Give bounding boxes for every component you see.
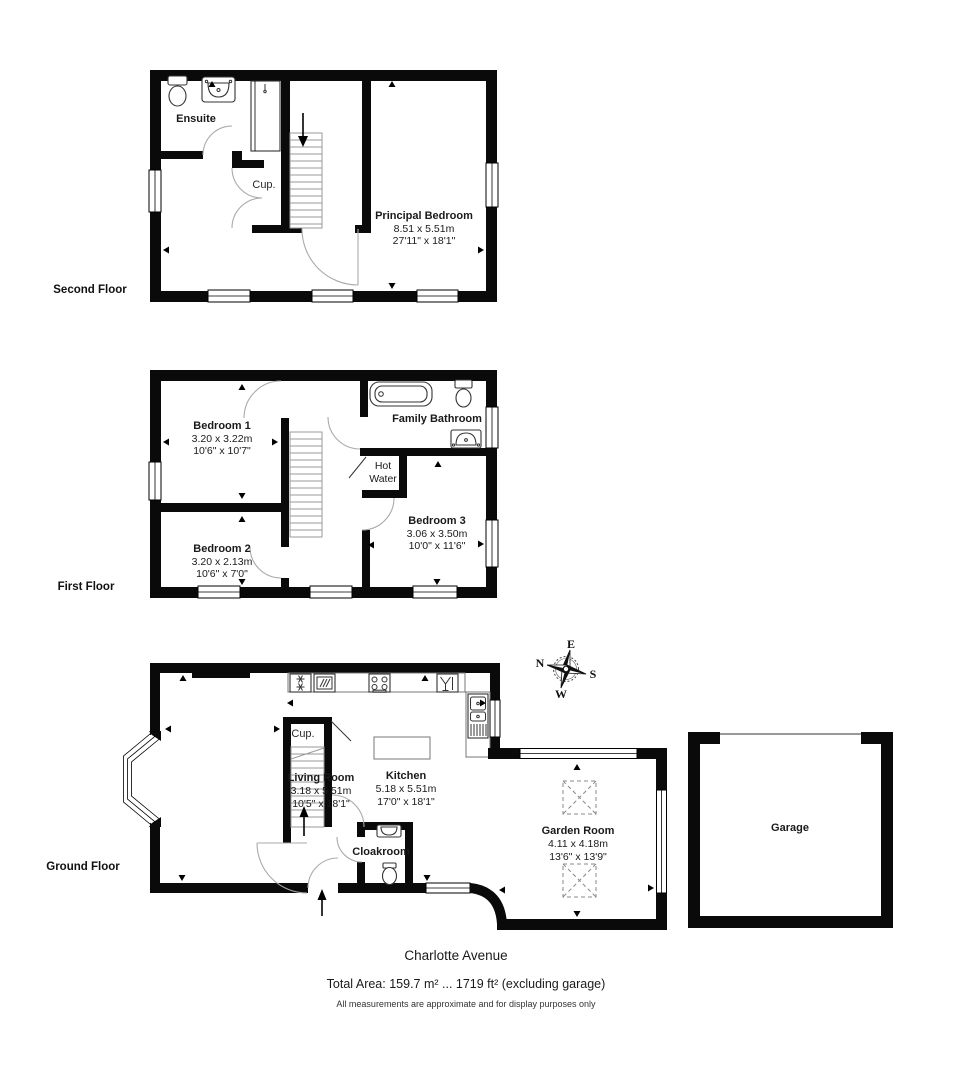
floor-label-ground: Ground Floor bbox=[46, 861, 120, 873]
front-door-arc bbox=[308, 858, 338, 888]
kitchen-island bbox=[374, 737, 430, 759]
door-arc bbox=[328, 417, 360, 449]
room-label-bedroom3: Bedroom 3 bbox=[408, 515, 465, 527]
garage-plan: Garage bbox=[688, 732, 893, 928]
first-floor-plan: Bedroom 1 3.20 x 3.22m 10'6" x 10'7" Bed… bbox=[58, 370, 498, 598]
room-label-cupboard: Cup. bbox=[291, 728, 314, 740]
door-arc bbox=[203, 126, 232, 155]
total-area-text: Total Area: 159.7 m² ... 1719 ft² (exclu… bbox=[327, 977, 606, 991]
toilet-icon bbox=[383, 863, 397, 885]
disclaimer-text: All measurements are approximate and for… bbox=[336, 999, 596, 1009]
door-arc bbox=[232, 198, 262, 228]
toilet-icon bbox=[168, 76, 187, 106]
room-dim-imperial: 10'0" x 11'6" bbox=[409, 540, 466, 552]
wine-cooler-icon bbox=[437, 674, 458, 692]
compass-east-label: E bbox=[567, 637, 575, 651]
floor-label-first: First Floor bbox=[58, 581, 115, 593]
room-dim-metric: 3.18 x 5.51m bbox=[291, 785, 352, 797]
floorplan-image: Ensuite Cup. Principal Bedroom 8.51 x 5.… bbox=[0, 0, 963, 1080]
room-dim-metric: 3.06 x 3.50m bbox=[407, 528, 468, 540]
room-label-principal-bedroom: Principal Bedroom bbox=[375, 210, 473, 222]
room-dim-imperial: 27'11" x 18'1" bbox=[393, 235, 456, 247]
sink-icon bbox=[451, 430, 481, 448]
bay-window bbox=[124, 731, 162, 827]
staircase bbox=[290, 432, 322, 537]
floor-label-second: Second Floor bbox=[53, 284, 127, 296]
room-label-ensuite: Ensuite bbox=[176, 113, 216, 125]
chimney-breast bbox=[192, 671, 250, 678]
hob-icon bbox=[369, 674, 390, 692]
sink-icon bbox=[377, 825, 401, 837]
ground-floor-plan: Living Room 3.18 x 5.51m 10'5" x 18'1" K… bbox=[46, 663, 667, 930]
room-dim-imperial: 10'6" x 7'0" bbox=[196, 568, 248, 580]
room-dim-imperial: 10'6" x 10'7" bbox=[193, 445, 251, 457]
room-label-living-room: Living Room bbox=[288, 772, 355, 784]
dishwasher-icon bbox=[314, 674, 335, 692]
room-label-hot-water: Water bbox=[369, 473, 397, 485]
room-label-family-bathroom: Family Bathroom bbox=[392, 413, 482, 425]
room-label-bedroom1: Bedroom 1 bbox=[193, 420, 250, 432]
door-arc bbox=[362, 498, 394, 530]
room-dim-metric: 3.20 x 3.22m bbox=[192, 433, 253, 445]
room-label-garden-room: Garden Room bbox=[542, 825, 615, 837]
fridge-icon bbox=[290, 674, 311, 692]
door-arc bbox=[302, 229, 358, 285]
compass-rose-icon: E N S W bbox=[536, 637, 597, 701]
bathtub-icon bbox=[370, 382, 432, 406]
kitchen-sink-icon bbox=[468, 694, 488, 738]
cupboard-door bbox=[331, 721, 351, 741]
compass-north-label: N bbox=[536, 656, 545, 670]
room-dim-imperial: 10'5" x 18'1" bbox=[292, 798, 350, 810]
shower-icon bbox=[251, 81, 280, 151]
room-label-cloakroom: Cloakroom bbox=[352, 846, 410, 858]
room-dim-metric: 5.18 x 5.51m bbox=[376, 783, 437, 795]
second-floor-plan: Ensuite Cup. Principal Bedroom 8.51 x 5.… bbox=[53, 70, 498, 302]
compass-south-label: S bbox=[590, 667, 597, 681]
door-arc bbox=[250, 547, 281, 578]
floorplan-page: Ensuite Cup. Principal Bedroom 8.51 x 5.… bbox=[0, 0, 963, 1080]
room-dim-imperial: 13'6" x 13'9" bbox=[549, 851, 607, 863]
compass-west-label: W bbox=[555, 687, 567, 701]
room-dim-metric: 8.51 x 5.51m bbox=[394, 223, 455, 235]
door-arc bbox=[244, 381, 281, 418]
room-dim-metric: 3.20 x 2.13m bbox=[192, 556, 253, 568]
sink-icon bbox=[202, 77, 235, 102]
footer: Charlotte Avenue Total Area: 159.7 m² ..… bbox=[327, 948, 606, 1009]
hot-water-door bbox=[349, 457, 366, 478]
staircase bbox=[290, 113, 322, 228]
entrance-arrow-icon bbox=[318, 889, 327, 916]
room-label-cupboard: Cup. bbox=[252, 179, 275, 191]
room-dim-imperial: 17'0" x 18'1" bbox=[377, 796, 435, 808]
room-label-hot-water: Hot bbox=[375, 460, 391, 472]
room-label-kitchen: Kitchen bbox=[386, 770, 427, 782]
room-dim-metric: 4.11 x 4.18m bbox=[548, 838, 608, 850]
room-label-garage: Garage bbox=[771, 822, 809, 834]
toilet-icon bbox=[455, 380, 472, 407]
room-label-bedroom2: Bedroom 2 bbox=[193, 543, 250, 555]
street-name: Charlotte Avenue bbox=[404, 948, 507, 963]
